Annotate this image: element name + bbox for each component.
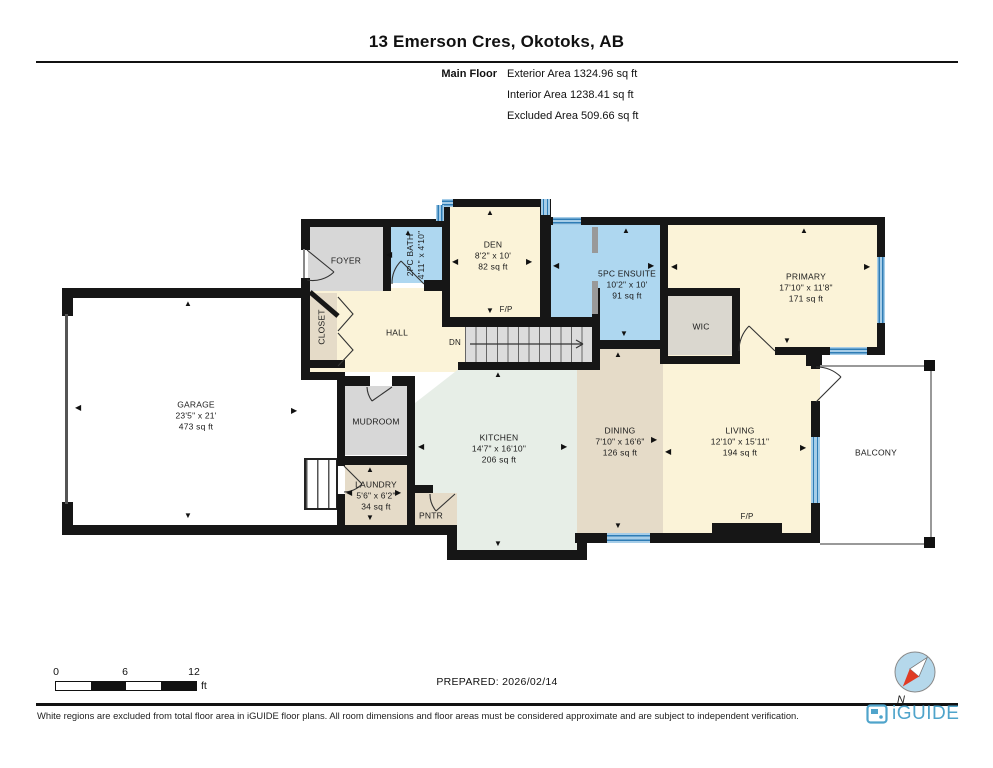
measure-arrow-up-icon: ▲ xyxy=(800,227,808,235)
measure-arrow-right-icon: ▶ xyxy=(526,258,532,266)
iguide-icon xyxy=(866,704,888,724)
measure-arrow-right-icon: ▶ xyxy=(291,407,297,415)
dining-label: DINING 7'10" x 16'6" 126 sq ft xyxy=(595,425,644,458)
measure-arrow-up-icon: ▲ xyxy=(366,466,374,474)
measure-arrow-up-icon: ▲ xyxy=(494,371,502,379)
measure-arrow-up-icon: ▲ xyxy=(622,227,630,235)
measure-arrow-up-icon: ▲ xyxy=(486,209,494,217)
measure-arrow-down-icon: ▼ xyxy=(366,514,374,522)
brand-logo: iGUIDE xyxy=(866,703,959,725)
foyer-label: FOYER xyxy=(331,255,361,266)
measure-arrow-right-icon: ▶ xyxy=(800,444,806,452)
den-label: DEN 8'2" x 10' 82 sq ft xyxy=(475,239,511,272)
measure-arrow-down-icon: ▼ xyxy=(614,522,622,530)
measure-arrow-down-icon: ▼ xyxy=(486,307,494,315)
compass-icon: N xyxy=(887,648,943,706)
scale-segment xyxy=(56,682,91,690)
measure-arrow-down-icon: ▼ xyxy=(783,337,791,345)
scale-tick-12: 12 xyxy=(184,666,204,678)
measure-arrow-right-icon: ▶ xyxy=(561,443,567,451)
bath-label: 2PC BATH 4'11" x 4'10" xyxy=(405,231,427,280)
scale-segment xyxy=(126,682,161,690)
stairs-direction-arrow xyxy=(470,340,583,348)
scale-segment xyxy=(161,682,196,690)
prepared-date: PREPARED: 2026/02/14 xyxy=(377,676,617,688)
doors-overlay xyxy=(0,0,993,768)
measure-arrow-down-icon: ▼ xyxy=(620,330,628,338)
den-fireplace-label: F/P xyxy=(499,305,512,315)
measure-arrow-up-icon: ▲ xyxy=(184,300,192,308)
stairs-dn-label: DN xyxy=(449,338,461,348)
brand-name: iGUIDE xyxy=(892,703,959,725)
living-label: LIVING 12'10" x 15'11" 194 sq ft xyxy=(711,425,769,458)
measure-arrow-up-icon: ▲ xyxy=(614,351,622,359)
measure-arrow-right-icon: ▶ xyxy=(395,489,401,497)
hall-label: HALL xyxy=(386,327,408,338)
primary-label: PRIMARY 17'10" x 11'8" 171 sq ft xyxy=(779,271,833,304)
measure-arrow-down-icon: ▼ xyxy=(184,512,192,520)
measure-arrow-right-icon: ▶ xyxy=(648,262,654,270)
measure-arrow-left-icon: ◀ xyxy=(346,489,352,497)
measure-arrow-down-icon: ▼ xyxy=(494,540,502,548)
measure-arrow-left-icon: ◀ xyxy=(553,262,559,270)
floor-plan: GARAGE 23'5" x 21' 473 sq ft FOYER CLOSE… xyxy=(0,0,993,768)
living-fireplace-label: F/P xyxy=(740,512,753,522)
floor-plan-page: 13 Emerson Cres, Okotoks, AB Main Floor … xyxy=(0,0,993,768)
disclaimer-text: White regions are excluded from total fl… xyxy=(37,710,837,721)
garage-label: GARAGE 23'5" x 21' 473 sq ft xyxy=(175,399,216,432)
closet-label: CLOSET xyxy=(316,309,327,344)
footer-divider xyxy=(36,703,958,706)
scale-unit-label: ft xyxy=(201,680,207,692)
measure-arrow-left-icon: ◀ xyxy=(665,448,671,456)
wic-label: WIC xyxy=(692,321,709,332)
measure-arrow-up-icon: ▲ xyxy=(404,229,412,237)
measure-arrow-right-icon: ▶ xyxy=(651,436,657,444)
measure-arrow-left-icon: ◀ xyxy=(75,404,81,412)
laundry-label: LAUNDRY 5'6" x 6'2" 34 sq ft xyxy=(355,479,397,512)
measure-arrow-right-icon: ▶ xyxy=(864,263,870,271)
pantry-label: PNTR xyxy=(419,510,443,521)
scale-tick-6: 6 xyxy=(115,666,135,678)
scale-bar xyxy=(55,681,197,691)
balcony-label: BALCONY xyxy=(855,447,897,458)
measure-arrow-left-icon: ◀ xyxy=(418,443,424,451)
measure-arrow-left-icon: ◀ xyxy=(386,251,392,259)
scale-tick-0: 0 xyxy=(46,666,66,678)
measure-arrow-left-icon: ◀ xyxy=(452,258,458,266)
scale-segment xyxy=(91,682,126,690)
measure-arrow-left-icon: ◀ xyxy=(671,263,677,271)
kitchen-label: KITCHEN 14'7" x 16'10" 206 sq ft xyxy=(472,432,526,465)
mudroom-label: MUDROOM xyxy=(352,416,399,427)
ensuite-label: 5PC ENSUITE 10'2" x 10' 91 sq ft xyxy=(598,268,656,301)
